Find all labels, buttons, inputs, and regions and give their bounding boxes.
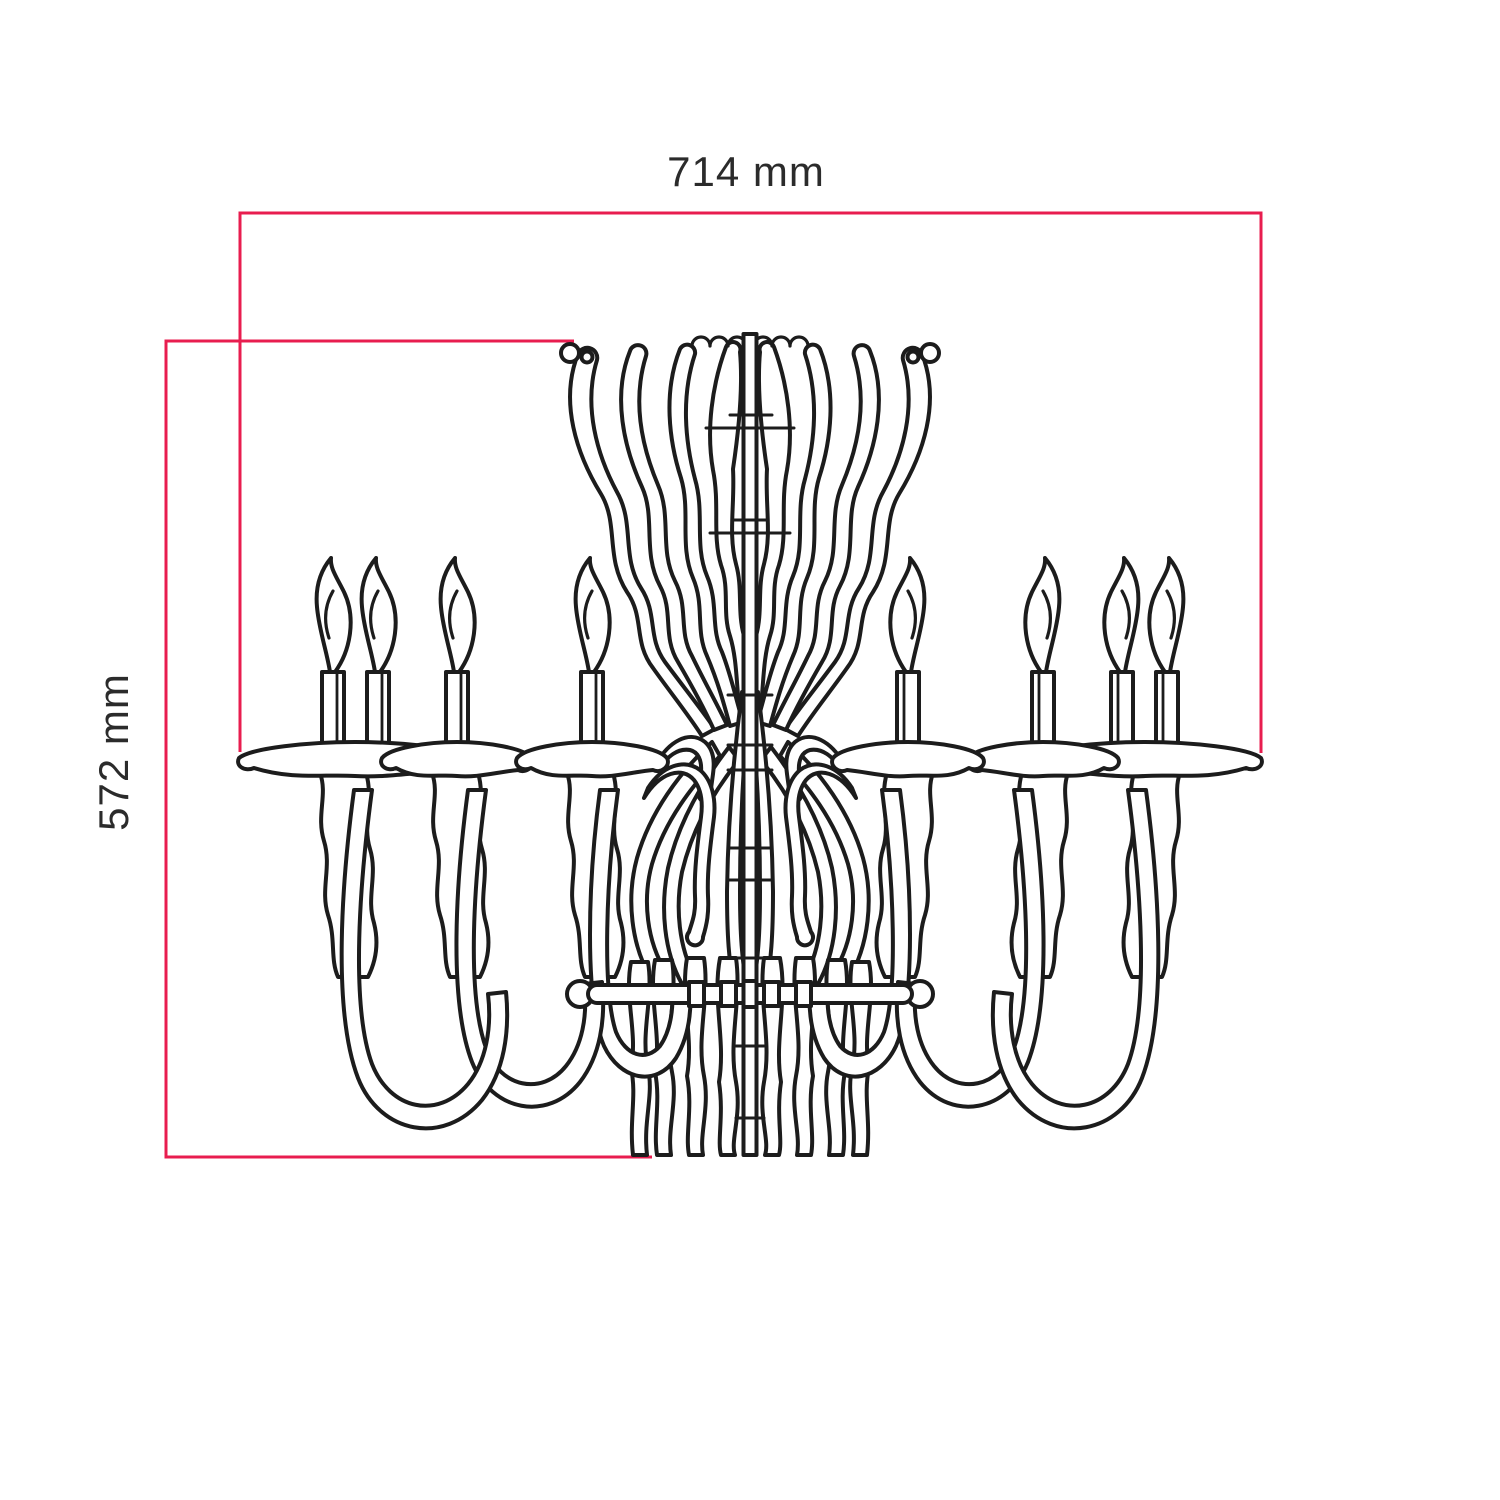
lower-ring-bar — [567, 981, 933, 1007]
strand-bar-joint — [796, 982, 811, 1006]
chandelier-left-half — [238, 337, 753, 1155]
strand-bar-joint — [721, 982, 736, 1006]
strand-bar-joint — [689, 982, 704, 1006]
width-dimension-label: 714 mm — [667, 148, 825, 195]
strand-bar-joint — [764, 982, 779, 1006]
chandelier-technical-drawing: 714 mm 572 mm — [0, 0, 1500, 1500]
height-dimension-label: 572 mm — [90, 673, 137, 831]
stem-bar-joint — [744, 981, 757, 1007]
chandelier-right-half — [747, 337, 1262, 1155]
drawing-canvas: 714 mm 572 mm — [0, 0, 1500, 1500]
